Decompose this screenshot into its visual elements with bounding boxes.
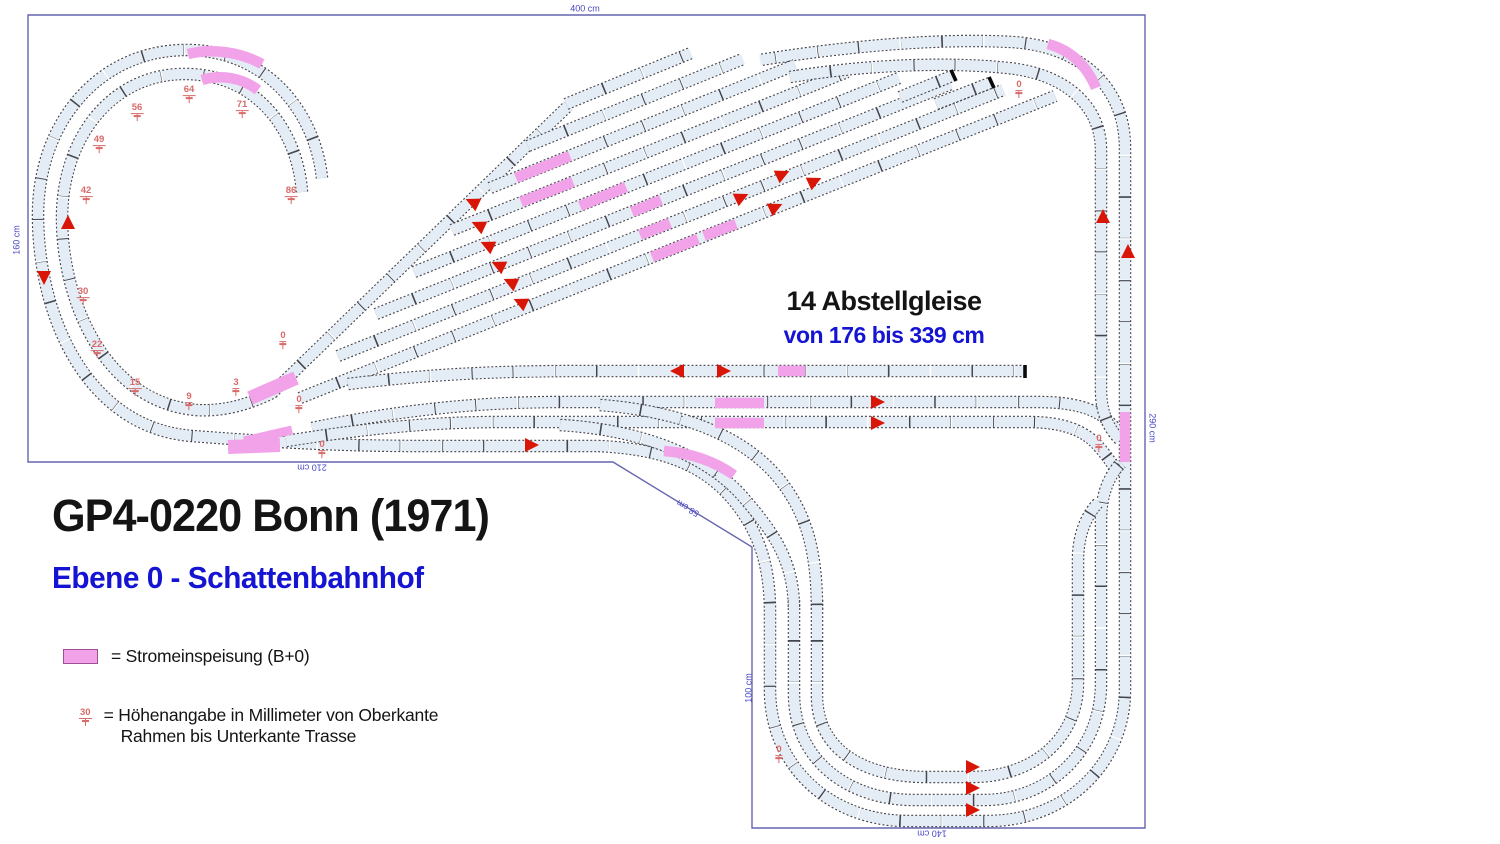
legend-height-marker-row: 30 = Höhenangabe in Millimeter von Oberk… [79,705,438,747]
track-plan-page: 400 cm160 cm210 cm58 cm100 cm140 cm290 c… [0,0,1500,844]
page-subtitle: Ebene 0 - Schattenbahnhof [52,560,424,596]
yard-annotation-range: von 176 bis 339 cm [784,322,985,349]
yard-annotation-title: 14 Abstellgleise [784,286,985,317]
legend-height-marker-label: = Höhenangabe in Millimeter von Oberkant… [104,705,439,747]
legend: = Stromeinspeisung (B+0) 30 = Höhenangab… [63,646,438,747]
page-title: GP4-0220 Bonn (1971) [52,490,489,542]
legend-power-feed-label: = Stromeinspeisung (B+0) [111,646,310,667]
power-feed-swatch-icon [63,649,98,664]
height-marker-icon: 30 [79,708,92,726]
yard-annotation: 14 Abstellgleise von 176 bis 339 cm [784,286,985,349]
legend-power-feed-row: = Stromeinspeisung (B+0) [63,646,438,667]
